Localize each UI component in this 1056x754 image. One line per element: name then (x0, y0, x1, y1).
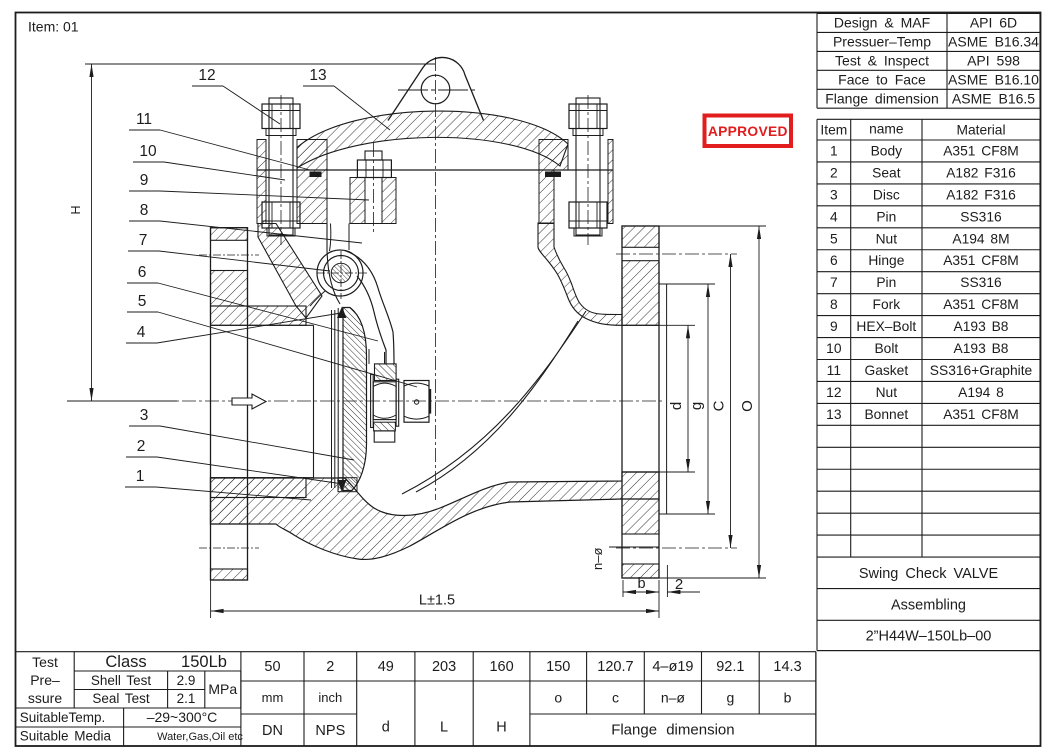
svg-text:8: 8 (140, 202, 149, 219)
svg-text:10: 10 (826, 341, 842, 356)
svg-text:H: H (496, 720, 506, 736)
svg-text:A193 B8: A193 B8 (954, 319, 1009, 334)
svg-text:Pin: Pin (876, 209, 896, 224)
svg-text:2: 2 (137, 438, 146, 455)
svg-text:2.9: 2.9 (177, 673, 196, 688)
svg-text:d: d (382, 720, 390, 736)
svg-text:Face to Face: Face to Face (838, 71, 926, 87)
svg-text:Design & MAF: Design & MAF (834, 14, 930, 30)
svg-text:C: C (711, 400, 728, 411)
svg-text:HEX–Bolt: HEX–Bolt (856, 319, 916, 334)
svg-text:n–ø: n–ø (590, 548, 605, 570)
svg-text:–29~300°C: –29~300°C (147, 709, 218, 725)
svg-text:DN: DN (262, 723, 283, 739)
svg-text:Flange dimension: Flange dimension (611, 722, 734, 739)
svg-text:3: 3 (140, 407, 149, 424)
svg-text:H: H (69, 205, 83, 214)
svg-text:ASME B16.34: ASME B16.34 (948, 33, 1039, 49)
svg-text:6: 6 (138, 264, 147, 281)
svg-text:name: name (869, 122, 904, 137)
svg-text:Fork: Fork (873, 297, 901, 312)
svg-text:Material: Material (956, 123, 1005, 138)
svg-text:inch: inch (318, 690, 342, 705)
svg-text:ASME B16.10: ASME B16.10 (948, 71, 1039, 87)
svg-text:d: d (668, 402, 685, 410)
svg-text:SS316+Graphite: SS316+Graphite (930, 363, 1033, 378)
svg-text:A194 8: A194 8 (958, 385, 1004, 400)
svg-text:ssure: ssure (28, 690, 62, 706)
svg-text:Class: Class (105, 653, 146, 671)
svg-text:120.7: 120.7 (597, 659, 633, 675)
svg-text:8: 8 (830, 297, 838, 312)
svg-text:Hinge: Hinge (868, 253, 904, 268)
svg-text:Pre–: Pre– (30, 672, 60, 688)
svg-text:2: 2 (675, 576, 683, 593)
svg-text:A351 CF8M: A351 CF8M (943, 297, 1019, 312)
svg-text:Bolt: Bolt (874, 341, 898, 356)
svg-text:APPROVED: APPROVED (708, 124, 788, 139)
svg-text:Item: 01: Item: 01 (28, 19, 79, 35)
svg-text:b: b (784, 690, 792, 706)
svg-text:Flange dimension: Flange dimension (825, 90, 939, 106)
svg-text:API 598: API 598 (967, 52, 1020, 68)
svg-text:92.1: 92.1 (716, 659, 744, 675)
svg-text:Suitable Media: Suitable Media (20, 729, 112, 744)
svg-text:A351 CF8M: A351 CF8M (943, 407, 1019, 422)
svg-text:n–ø: n–ø (661, 690, 686, 706)
svg-text:A182 F316: A182 F316 (946, 187, 1016, 202)
svg-text:A194 8M: A194 8M (952, 231, 1009, 246)
svg-text:9: 9 (140, 172, 149, 189)
svg-text:Nut: Nut (876, 231, 898, 246)
svg-text:4: 4 (830, 209, 838, 224)
svg-text:b: b (637, 576, 645, 592)
svg-text:12: 12 (826, 385, 841, 400)
svg-text:1: 1 (136, 468, 145, 485)
svg-text:o: o (554, 690, 562, 706)
svg-text:Body: Body (871, 143, 903, 158)
svg-text:7: 7 (830, 275, 838, 290)
svg-text:3: 3 (830, 187, 838, 202)
svg-text:A351 CF8M: A351 CF8M (943, 143, 1019, 158)
svg-text:NPS: NPS (315, 723, 345, 739)
svg-text:1: 1 (830, 143, 838, 158)
svg-text:Water,Gas,Oil etc: Water,Gas,Oil etc (157, 731, 243, 743)
svg-text:203: 203 (432, 659, 456, 675)
svg-text:L±1.5: L±1.5 (419, 593, 455, 609)
svg-text:11: 11 (136, 111, 152, 128)
svg-text:6: 6 (830, 253, 838, 268)
svg-text:4–ø19: 4–ø19 (652, 659, 693, 675)
svg-text:Gasket: Gasket (864, 363, 908, 378)
svg-text:2.1: 2.1 (177, 691, 196, 706)
svg-text:Assembling: Assembling (891, 598, 966, 614)
svg-text:2: 2 (326, 659, 334, 675)
svg-text:Nut: Nut (876, 385, 898, 400)
svg-text:Item: Item (820, 123, 847, 138)
svg-text:2: 2 (830, 165, 838, 180)
svg-text:O: O (739, 400, 756, 412)
svg-text:14.3: 14.3 (773, 659, 801, 675)
svg-text:mm: mm (262, 690, 284, 705)
svg-text:5: 5 (138, 293, 147, 310)
svg-text:9: 9 (830, 319, 838, 334)
svg-text:49: 49 (378, 659, 394, 675)
svg-text:API 6D: API 6D (970, 14, 1017, 30)
svg-text:5: 5 (830, 231, 838, 246)
svg-text:Seat: Seat (872, 165, 901, 180)
svg-text:2”H44W–150Lb–00: 2”H44W–150Lb–00 (866, 629, 992, 645)
svg-text:Seal Test: Seal Test (92, 691, 150, 706)
svg-text:11: 11 (827, 363, 841, 378)
svg-text:Test: Test (32, 654, 58, 670)
svg-text:160: 160 (489, 659, 513, 675)
svg-text:50: 50 (264, 659, 280, 675)
svg-text:4: 4 (137, 324, 146, 341)
svg-text:A193 B8: A193 B8 (954, 341, 1009, 356)
svg-text:L: L (440, 720, 448, 736)
svg-text:13: 13 (309, 67, 326, 84)
svg-text:SS316: SS316 (960, 209, 1002, 224)
svg-text:Bonnet: Bonnet (864, 407, 908, 422)
svg-text:g: g (726, 690, 734, 706)
svg-text:Shell Test: Shell Test (91, 673, 152, 688)
svg-text:Pin: Pin (876, 275, 896, 290)
svg-text:MPa: MPa (208, 681, 237, 697)
svg-text:Disc: Disc (873, 187, 900, 202)
svg-text:10: 10 (139, 143, 157, 160)
svg-text:Swing Check VALVE: Swing Check VALVE (859, 566, 999, 582)
svg-text:150: 150 (546, 659, 570, 675)
svg-text:c: c (612, 690, 619, 706)
svg-text:SuitableTemp.: SuitableTemp. (20, 710, 106, 725)
svg-text:Test & Inspect: Test & Inspect (835, 52, 929, 68)
svg-text:150Lb: 150Lb (181, 653, 227, 671)
svg-text:7: 7 (139, 232, 148, 249)
svg-text:12: 12 (198, 67, 215, 84)
svg-text:A351 CF8M: A351 CF8M (943, 253, 1019, 268)
svg-text:SS316: SS316 (960, 275, 1002, 290)
svg-text:A182 F316: A182 F316 (946, 165, 1016, 180)
svg-text:g: g (688, 402, 705, 410)
svg-text:ASME B16.5: ASME B16.5 (952, 90, 1035, 106)
svg-text:13: 13 (826, 407, 842, 422)
svg-text:Pressuer–Temp: Pressuer–Temp (833, 33, 931, 49)
